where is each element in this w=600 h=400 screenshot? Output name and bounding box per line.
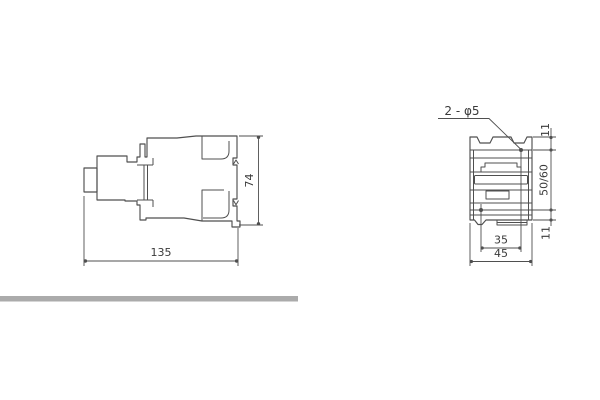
dim-point-bottom-hole xyxy=(549,208,552,211)
side-view-outline xyxy=(97,136,240,227)
side-view-top-hook xyxy=(202,137,229,160)
dim-arrow-74-top xyxy=(257,136,260,139)
dim-arrow-135-right xyxy=(235,259,238,262)
side-view: 74 135 xyxy=(84,136,263,267)
side-view-bottom-block xyxy=(202,190,229,222)
dimension-drawing-page: 74 135 2 - φ5 xyxy=(0,0,600,400)
dim-arrow-135-left xyxy=(84,259,87,262)
dim-label-74: 74 xyxy=(243,174,256,188)
dim-label-11-top: 11 xyxy=(539,123,552,137)
front-view-center-boss xyxy=(481,163,521,172)
front-view-upper-slot xyxy=(475,176,528,185)
dimension-side-height: 74 xyxy=(239,136,263,226)
front-view: 2 - φ5 11 50/60 11 35 45 xyxy=(438,104,556,266)
holes-callout-label: 2 - φ5 xyxy=(444,104,479,118)
callout-leader-line xyxy=(438,119,520,149)
dim-arrow-35-right xyxy=(518,246,521,249)
front-view-horizontal-lines xyxy=(470,150,532,215)
dim-arrow-74-bottom xyxy=(257,222,260,225)
front-view-bottom-tab xyxy=(497,220,527,225)
front-view-lower-slot xyxy=(486,191,509,199)
dim-label-135: 135 xyxy=(151,246,172,259)
drawing-canvas: 74 135 2 - φ5 xyxy=(0,0,600,400)
divider-bar xyxy=(0,296,298,302)
side-view-neck-lines xyxy=(137,158,153,207)
dim-label-35: 35 xyxy=(494,234,508,247)
dim-label-45: 45 xyxy=(494,247,508,260)
side-view-button xyxy=(84,168,97,192)
dim-arrow-45-right xyxy=(529,260,532,263)
dim-label-50-60: 50/60 xyxy=(538,164,551,196)
dim-point-bottom-edge xyxy=(549,218,552,221)
dimension-side-width: 135 xyxy=(84,196,239,266)
side-view-clip-marks xyxy=(234,160,239,205)
dim-point-top-hole xyxy=(549,148,552,151)
dim-label-11-bottom: 11 xyxy=(540,226,553,240)
dim-arrow-45-left xyxy=(470,260,473,263)
dimension-bottom-rows: 35 45 xyxy=(470,223,532,266)
dim-arrow-35-left xyxy=(481,246,484,249)
dimension-right-column: 11 50/60 11 xyxy=(533,123,556,240)
